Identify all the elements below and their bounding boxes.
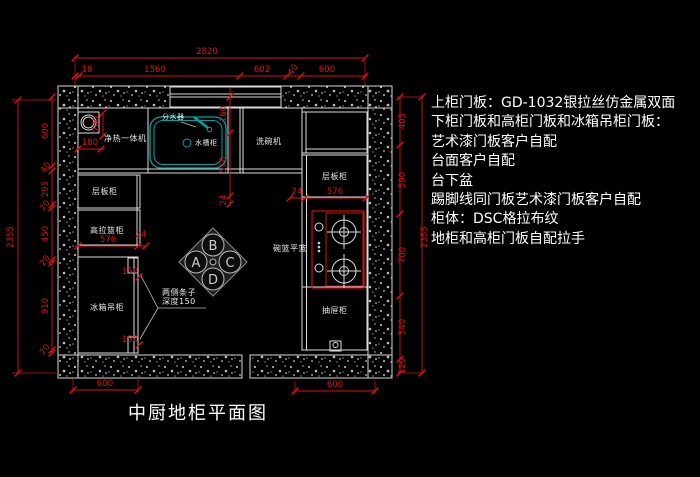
dimension-label: 160 bbox=[219, 106, 229, 122]
dimension-label: 18 bbox=[82, 65, 93, 75]
dimension-label: 2355 bbox=[420, 226, 430, 248]
dimension-label: 200 bbox=[92, 116, 102, 132]
dimension-label: 24 bbox=[136, 230, 147, 240]
label-side-strips-2: 深度150 bbox=[162, 297, 196, 306]
dimension-label: 40 bbox=[39, 161, 53, 176]
dimension-label: 20 bbox=[38, 199, 52, 214]
dimension-label: 20 bbox=[38, 254, 52, 269]
note-line: 踢脚线同门板艺术漆门板客户自配 bbox=[431, 191, 675, 210]
dimension-label: 602 bbox=[254, 65, 270, 75]
abcd-symbol: A B C D bbox=[179, 228, 247, 296]
cad-canvas[interactable]: A B C D 28201815606024060023556004029520… bbox=[0, 0, 700, 477]
dimension-label: 700 bbox=[398, 247, 408, 263]
dimension-label: 1560 bbox=[144, 65, 166, 75]
spec-notes: 上柜门板：GD-1032银拉丝仿金属双面 下柜门板和高柜门板和冰箱吊柜门板： 艺… bbox=[431, 94, 675, 249]
stove-knob bbox=[315, 264, 323, 272]
note-line: 台下盆 bbox=[431, 172, 675, 191]
stove-knob bbox=[315, 223, 323, 231]
label-dishwasher: 洗碗机 bbox=[256, 137, 282, 146]
wall-bottom-left bbox=[58, 355, 242, 378]
label-tall-basket-cabinet: 高拉篮柜 bbox=[90, 226, 124, 235]
note-line: 台面客户自配 bbox=[431, 152, 675, 171]
compass-letter-b: B bbox=[209, 239, 218, 254]
note-line: 地柜和高柜门板自配拉手 bbox=[431, 230, 675, 249]
label-shelf-cabinet-left: 层板柜 bbox=[92, 187, 118, 196]
dimension-label: 180 bbox=[82, 138, 98, 148]
faucet-icon bbox=[207, 127, 212, 132]
wall-left bbox=[58, 86, 78, 378]
stove-outline bbox=[312, 211, 364, 288]
dimension-label: 150 bbox=[122, 267, 138, 277]
stove-dot bbox=[318, 246, 320, 248]
label-shelf-cabinet-right: 层板柜 bbox=[322, 172, 348, 181]
label-fridge-wall-cabinet: 冰箱吊柜 bbox=[90, 303, 124, 312]
dimension-label: 450 bbox=[41, 226, 51, 242]
note-line: 柜体：DSC格拉布纹 bbox=[431, 210, 675, 229]
label-side-strips-1: 两侧条子 bbox=[162, 288, 196, 297]
note-line: 下柜门板和高柜门板和冰箱吊柜门板： bbox=[431, 113, 675, 132]
dimension-label: 2820 bbox=[196, 47, 218, 57]
right-wall-cabinet bbox=[302, 112, 367, 153]
label-sink-cabinet: 水槽柜 bbox=[195, 139, 218, 148]
faucet-icon bbox=[194, 117, 208, 128]
dimension-label: 576 bbox=[100, 235, 116, 245]
dimension-label: 24 bbox=[292, 187, 303, 197]
dimension-label: 590 bbox=[398, 172, 408, 188]
wall-bottom-right bbox=[250, 355, 392, 378]
dimension-label: 405 bbox=[398, 113, 408, 129]
dimension-label: 600 bbox=[97, 379, 113, 389]
dimension-label: 24 bbox=[219, 195, 229, 206]
dimension-label: 576 bbox=[327, 187, 343, 197]
drawing-title: 中厨地柜平面图 bbox=[128, 399, 268, 425]
circle-center bbox=[210, 259, 216, 265]
dimension-label: 600 bbox=[319, 65, 335, 75]
compass-letter-c: C bbox=[225, 256, 234, 271]
wall-right bbox=[368, 86, 392, 378]
stove-dot bbox=[318, 242, 320, 244]
note-line: 艺术漆门板客户自配 bbox=[431, 133, 675, 152]
dimension-label: 540 bbox=[398, 319, 408, 335]
dimension-label: 295 bbox=[41, 181, 51, 197]
stove-dot bbox=[318, 250, 320, 252]
strip-leader bbox=[140, 308, 158, 339]
dimension-label: 120 bbox=[398, 358, 408, 374]
dimension-label: 910 bbox=[41, 298, 51, 314]
compass-letter-a: A bbox=[192, 256, 201, 271]
label-water-purifier: 净热一体机 bbox=[104, 134, 147, 143]
sink-drain bbox=[183, 139, 191, 147]
label-drawer-cabinet: 抽屉柜 bbox=[322, 306, 348, 315]
dimension-label: 150 bbox=[122, 335, 138, 345]
dimension-label: 2355 bbox=[6, 226, 16, 248]
dimension-label: 600 bbox=[327, 380, 343, 390]
label-water-distributor: 分水器 bbox=[162, 113, 185, 122]
compass-letter-d: D bbox=[208, 273, 218, 288]
distributor-leader bbox=[181, 122, 196, 127]
gas-stove bbox=[312, 211, 364, 288]
strip-leader bbox=[140, 274, 158, 308]
label-bowl-basket: 碗篮平篮 bbox=[273, 244, 307, 253]
dimension-label: 600 bbox=[41, 123, 51, 139]
note-line: 上柜门板：GD-1032银拉丝仿金属双面 bbox=[431, 94, 675, 113]
drawer-handle-knob bbox=[333, 343, 338, 348]
dimension-label: 576 bbox=[219, 157, 229, 173]
